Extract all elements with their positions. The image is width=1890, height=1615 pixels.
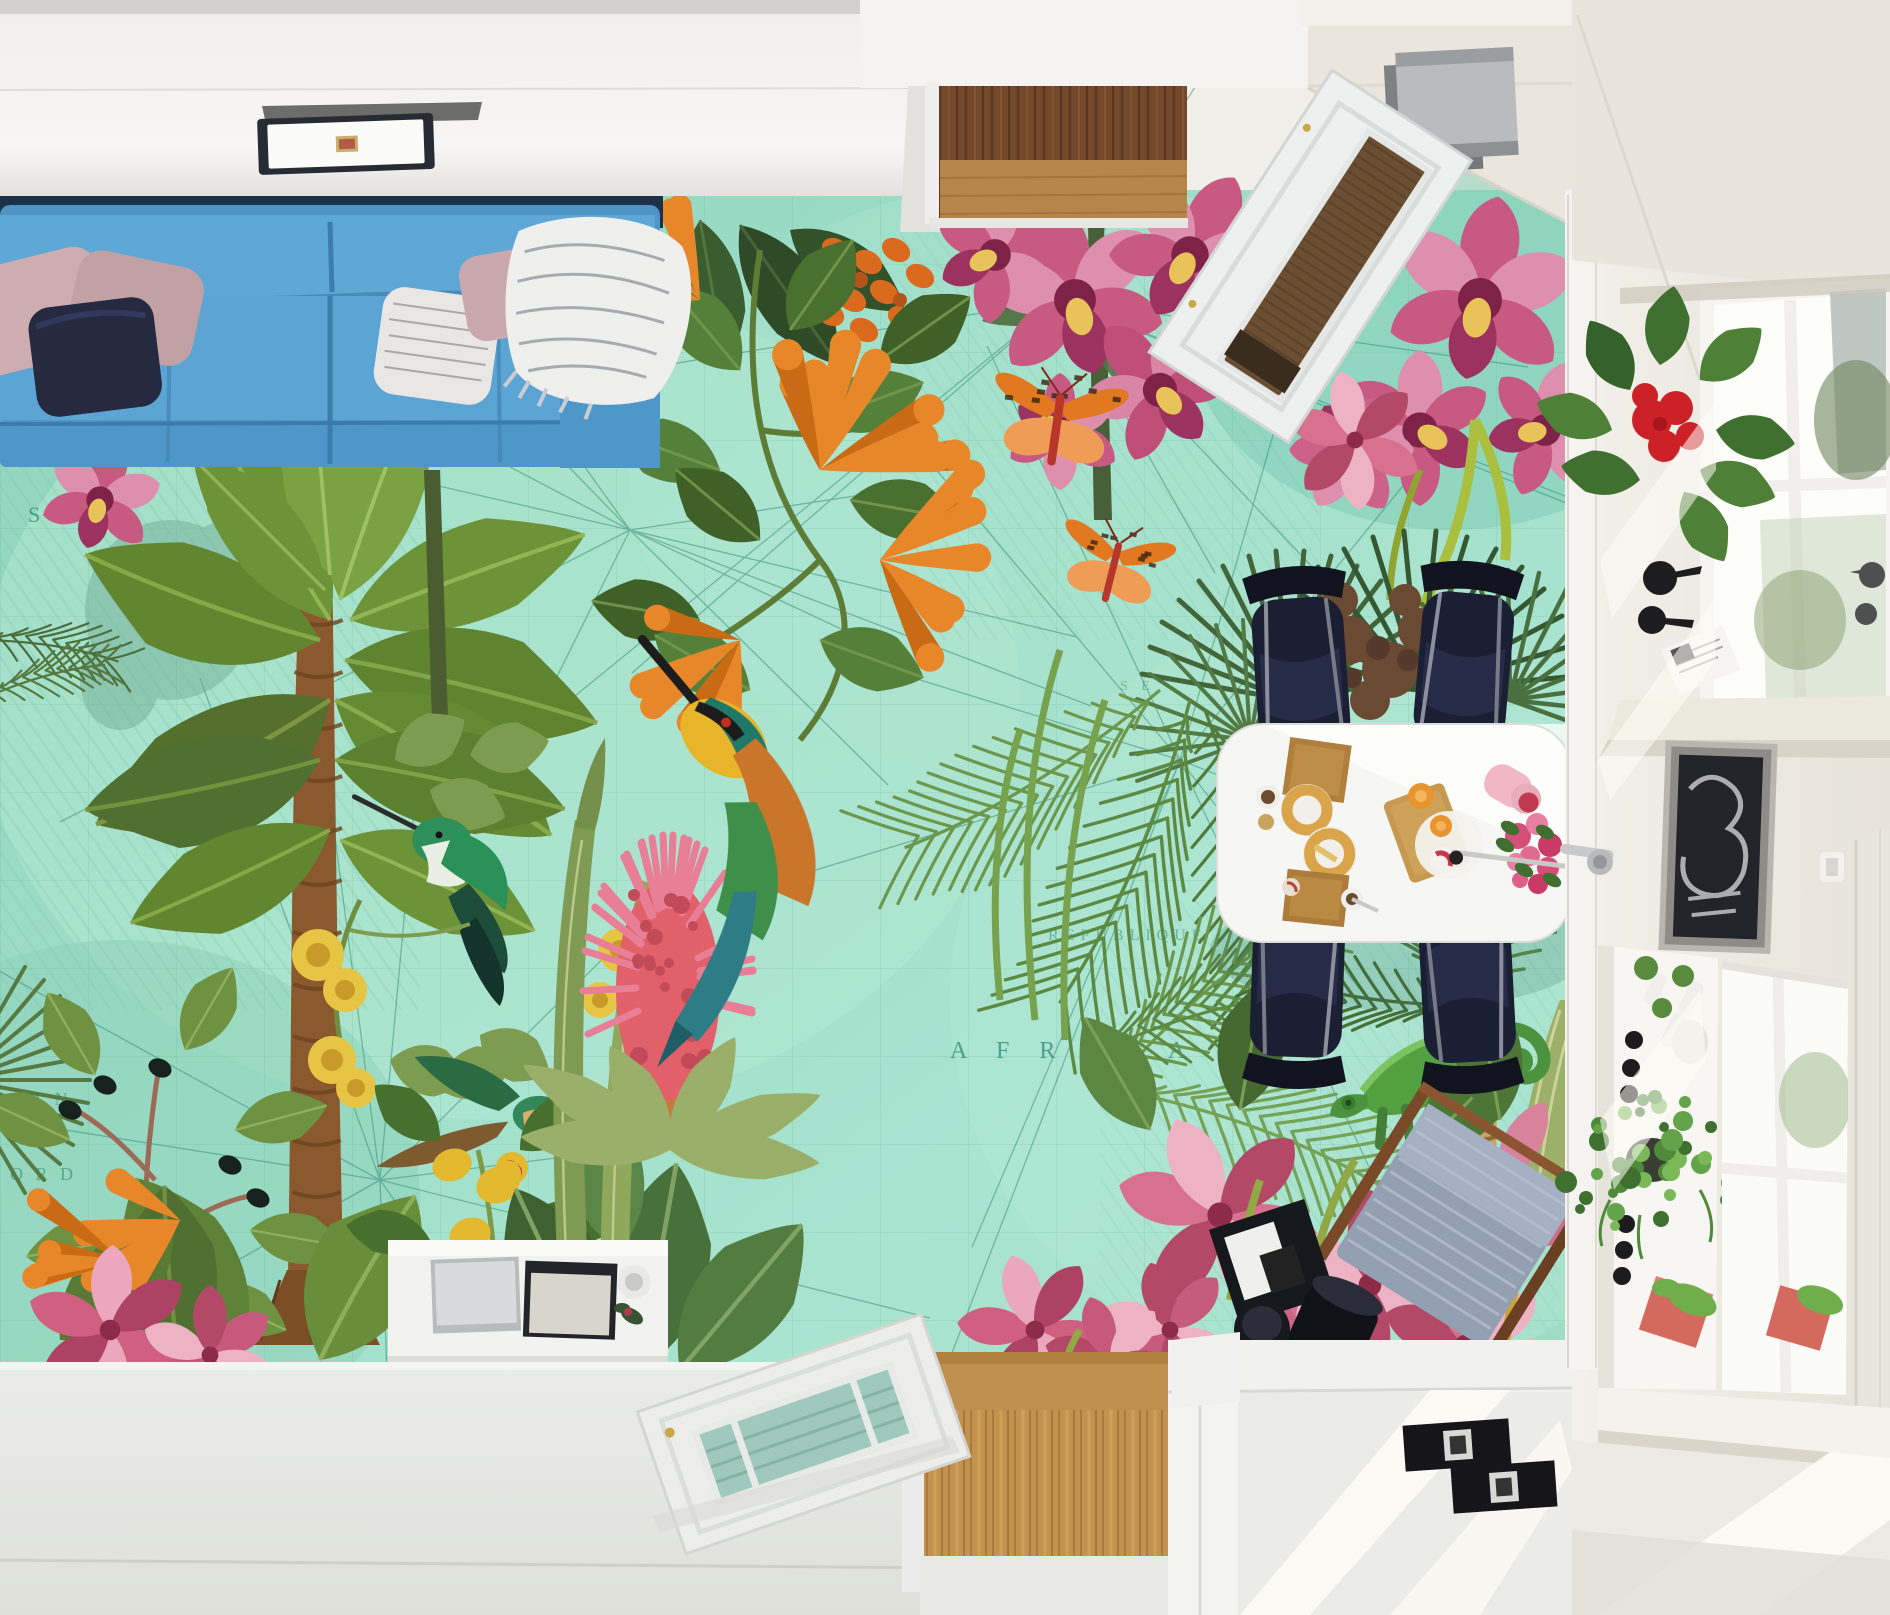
svg-text:S E: S E	[1120, 679, 1155, 694]
